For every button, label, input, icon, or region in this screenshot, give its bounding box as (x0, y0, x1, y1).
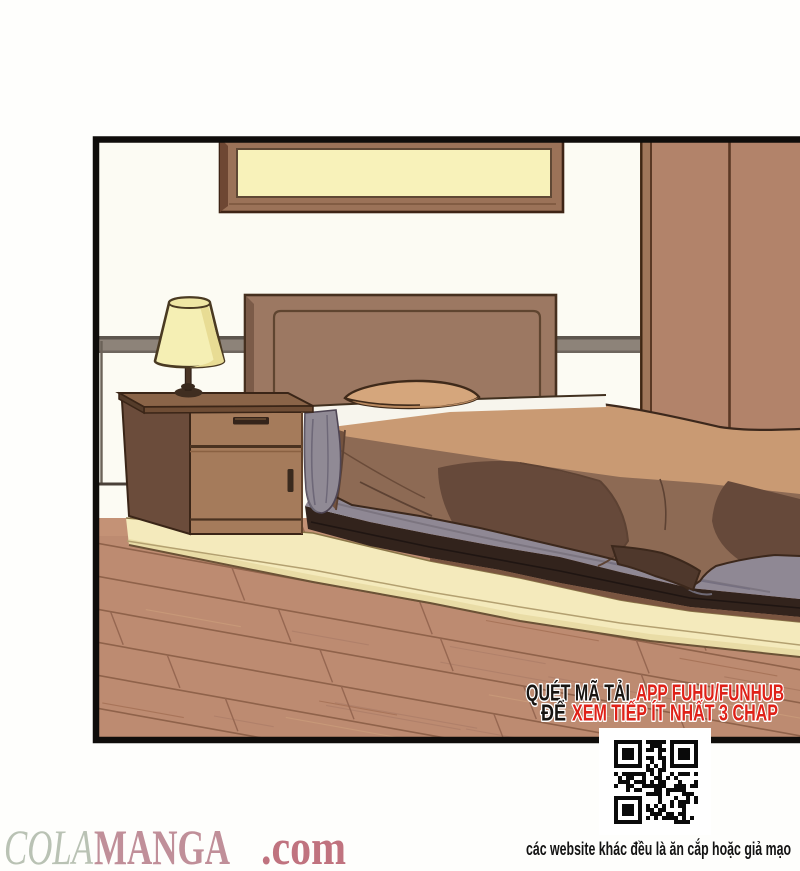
svg-text:các website khác đều là ăn cắp: các website khác đều là ăn cắp hoặc giả … (526, 838, 791, 859)
svg-text:MANGA: MANGA (94, 819, 230, 871)
svg-text:XEM TIẾP ÍT NHẤT 3 CHAP: XEM TIẾP ÍT NHẤT 3 CHAP (572, 699, 778, 726)
svg-text:COLA: COLA (4, 819, 93, 871)
svg-text:.com: .com (261, 819, 346, 871)
svg-text:ĐỂ: ĐỂ (541, 699, 566, 726)
